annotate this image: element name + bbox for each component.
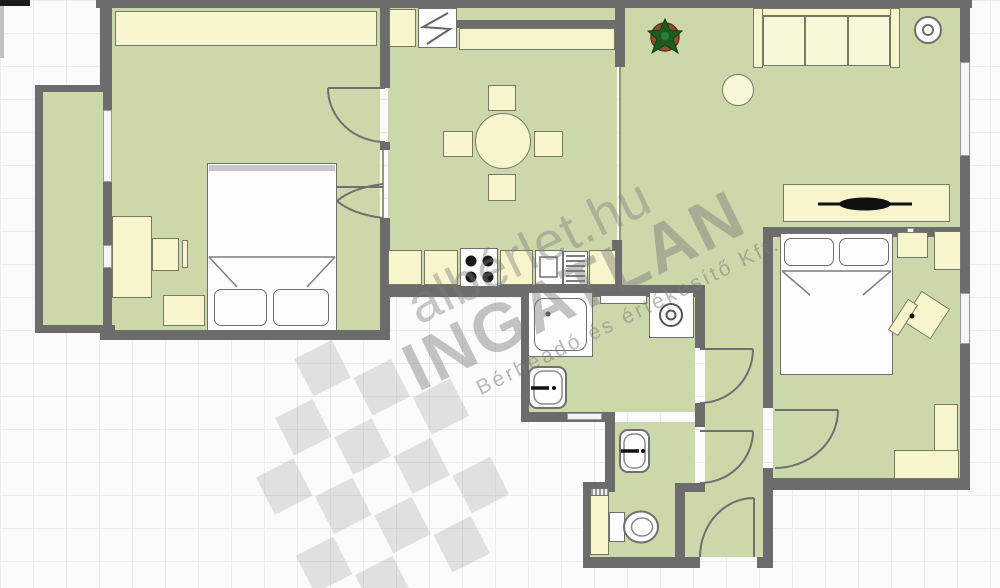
pillow-icon	[784, 238, 834, 266]
wall-bedroom1-bottom	[100, 330, 390, 340]
dining-chair-icon	[443, 131, 473, 157]
sofa-back-icon	[753, 8, 900, 16]
bathroom-vent-icon	[567, 413, 602, 420]
dining-chair-icon	[534, 131, 563, 157]
balcony-window2-icon	[103, 245, 112, 268]
boundary-line-dining-living	[619, 67, 621, 240]
chair-icon	[152, 238, 179, 271]
kitchen-counter-icon	[459, 28, 615, 50]
dish-drainer-icon	[563, 251, 588, 285]
washing-machine-icon	[649, 292, 694, 338]
wall-kitchen-living-top	[615, 8, 625, 67]
wall-bedroom1-left-upper	[100, 8, 112, 85]
balcony-floor	[43, 92, 103, 325]
balcony-window-icon	[103, 110, 112, 182]
kitchen-sink-icon	[535, 250, 563, 285]
wall-balcony-left	[35, 92, 43, 333]
wall-top	[96, 0, 972, 8]
pillow-icon	[273, 289, 329, 326]
hall-floor	[705, 227, 763, 557]
wc-cabinet-icon	[590, 494, 609, 555]
counter-unit-icon	[589, 250, 616, 285]
desk-icon	[112, 216, 152, 298]
boundary-line-bedroom1	[382, 150, 384, 218]
dining-chair-icon	[488, 174, 516, 201]
wall-left-edge-faint	[0, 6, 4, 58]
wall-hall-bath-b	[695, 403, 705, 427]
pillow-icon	[839, 238, 889, 266]
wall-wc-corner-h	[675, 483, 705, 492]
shower-tray-icon	[534, 298, 587, 351]
stove-icon	[460, 248, 498, 287]
wc-floor-upper	[615, 422, 695, 483]
counter-unit-icon	[388, 250, 422, 285]
sofa-armrest-icon	[890, 8, 900, 68]
wall-kitchen-inner-top	[455, 20, 617, 28]
wc-floor-mid	[615, 483, 675, 492]
tv-sideboard-icon	[783, 184, 950, 222]
living-room-floor-ext	[620, 227, 705, 287]
floor-plan: albérlet.hu INGATLAN Bérbeadó és értékes…	[0, 0, 1000, 588]
dining-table-icon	[475, 113, 531, 169]
sofa-armrest-icon	[753, 8, 763, 68]
corner-bench-icon	[894, 450, 959, 479]
nightstand-icon	[163, 295, 205, 326]
wall-hall-right-lower	[763, 468, 773, 568]
nightstand-icon	[897, 232, 928, 258]
vestibule-floor	[685, 492, 705, 557]
toilet-tank-icon	[609, 512, 625, 542]
sofa-cushion-icon	[848, 16, 890, 66]
sofa-cushion-icon	[805, 16, 848, 66]
bed-headboard-icon	[209, 165, 335, 171]
watermark-logo-icon	[216, 300, 529, 588]
living-window-icon	[960, 62, 970, 156]
wall-balcony-top	[35, 85, 112, 92]
wardrobe-icon	[115, 11, 377, 46]
sofa-cushion-icon	[763, 16, 805, 66]
nightstand-icon	[934, 231, 961, 270]
pillow-icon	[214, 289, 267, 326]
radiator-shelf-icon	[600, 295, 647, 304]
wall-bedroom1-right-stub	[380, 142, 390, 150]
wall-top-left-black	[0, 0, 30, 6]
dining-chair-icon	[488, 85, 516, 111]
wc-cabinet-top-icon	[590, 488, 609, 496]
coffee-table-icon	[722, 74, 754, 106]
counter-unit-icon	[500, 250, 533, 285]
fridge-zigzag-icon	[418, 8, 457, 48]
corner-bench-icon	[934, 404, 958, 451]
kitchen-cabinet-icon	[389, 9, 416, 47]
wall-wc-left-lower	[583, 492, 590, 562]
wall-wc-corner-v	[675, 492, 685, 562]
counter-unit-icon	[424, 250, 458, 285]
wall-hall-right-upper	[763, 227, 773, 408]
chair-back-icon	[182, 240, 188, 268]
wall-bedroom2-bottom	[773, 478, 970, 490]
wall-hall-bath-a	[695, 297, 705, 348]
bedroom2-window-icon	[960, 293, 970, 344]
